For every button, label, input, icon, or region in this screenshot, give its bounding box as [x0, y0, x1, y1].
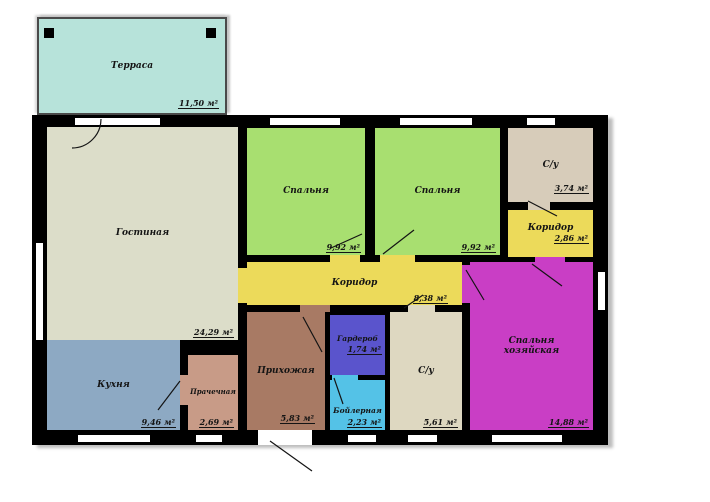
room-label: С/у	[543, 160, 559, 170]
room-terrace: Терраса 11,50 м²	[37, 17, 227, 115]
room-bathroom-top: С/у 3,74 м²	[508, 128, 593, 202]
room-bedroom-1: Спальня 9,92 м²	[247, 128, 365, 255]
room-laundry: Прачечная 2,69 м²	[188, 355, 238, 430]
window	[196, 434, 222, 443]
room-area: 2,23 м²	[347, 417, 382, 428]
room-master-bedroom: Спальня хозяйская 14,88 м²	[470, 262, 593, 430]
room-area: 11,50 м²	[178, 98, 219, 109]
room-area: 24,29 м²	[193, 327, 234, 338]
room-corridor-main: Коридор 8,38 м²	[247, 262, 462, 305]
window	[408, 434, 437, 443]
room-area: 5,83 м²	[280, 413, 315, 424]
room-area: 9,92 м²	[326, 242, 361, 253]
window	[527, 117, 555, 126]
door-opening	[380, 255, 415, 262]
room-area: 9,92 м²	[461, 242, 496, 253]
room-area: 1,74 м²	[347, 344, 382, 355]
floor-plan: Терраса 11,50 м² Гостиная 24,29 м² Кухня…	[0, 0, 710, 502]
window	[492, 434, 562, 443]
room-bedroom-2: Спальня 9,92 м²	[375, 128, 500, 255]
door-opening	[300, 305, 330, 312]
door-opening	[408, 305, 435, 312]
house-outline: Гостиная 24,29 м² Кухня 9,46 м² Прачечна…	[32, 115, 608, 445]
room-bathroom-bottom: С/у 5,61 м²	[390, 312, 462, 430]
room-area: 9,46 м²	[141, 417, 176, 428]
room-area: 2,86 м²	[554, 233, 589, 244]
window	[597, 272, 606, 310]
door-opening	[180, 375, 188, 405]
room-label: Кухня	[97, 380, 130, 390]
door-opening	[330, 255, 360, 262]
room-kitchen: Кухня 9,46 м²	[47, 340, 180, 430]
window	[270, 117, 340, 126]
room-area: 2,69 м²	[199, 417, 234, 428]
room-label: Гардероб	[337, 335, 378, 344]
room-wardrobe: Гардероб 1,74 м²	[330, 315, 385, 375]
room-area: 8,38 м²	[413, 293, 448, 304]
room-area: 14,88 м²	[548, 417, 589, 428]
room-label: Терраса	[111, 61, 153, 71]
room-label: Коридор	[332, 278, 378, 288]
room-boiler: Бойлерная 2,23 м²	[330, 380, 385, 430]
room-label: Спальня	[283, 186, 329, 196]
door-opening	[535, 257, 565, 262]
window	[348, 434, 376, 443]
room-hallway: Прихожая 5,83 м²	[247, 312, 325, 430]
room-label: Спальня	[415, 186, 461, 196]
terrace-door-opening	[75, 117, 160, 126]
room-label: С/у	[418, 366, 434, 376]
terrace-post	[44, 28, 54, 38]
window	[78, 434, 150, 443]
room-label: Гостиная	[116, 228, 169, 238]
room-label: Прачечная	[190, 388, 236, 396]
terrace-post	[206, 28, 216, 38]
window	[400, 117, 472, 126]
room-area: 5,61 м²	[423, 417, 458, 428]
room-area: 3,74 м²	[554, 183, 589, 194]
room-label: Коридор	[528, 223, 574, 233]
room-label: Спальня хозяйская	[497, 336, 567, 357]
door-opening	[332, 375, 358, 380]
door-opening	[462, 265, 470, 303]
room-label: Бойлерная	[333, 407, 382, 416]
window	[35, 243, 44, 340]
door-opening	[528, 202, 550, 210]
entrance-door-opening	[258, 430, 312, 445]
room-label: Прихожая	[257, 366, 314, 376]
room-living: Гостиная 24,29 м²	[47, 127, 238, 340]
room-corridor-small: Коридор 2,86 м²	[508, 210, 593, 257]
door-opening	[238, 268, 247, 303]
